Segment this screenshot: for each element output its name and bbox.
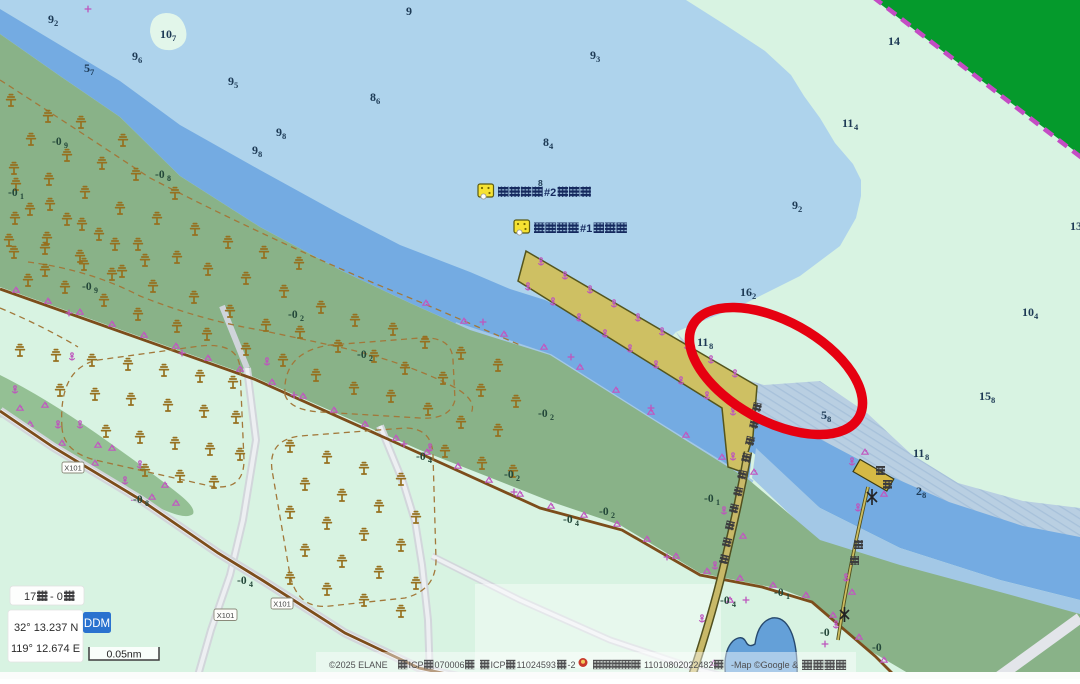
svg-text:4: 4 bbox=[428, 456, 432, 465]
svg-text:11010802022482: 11010802022482 bbox=[644, 660, 713, 670]
svg-text:17: 17 bbox=[24, 591, 36, 603]
svg-text:-0: -0 bbox=[820, 627, 830, 639]
svg-text:2: 2 bbox=[300, 314, 304, 323]
svg-text:-0: -0 bbox=[133, 494, 143, 506]
svg-text:2: 2 bbox=[752, 291, 756, 301]
svg-text:-0: -0 bbox=[563, 514, 573, 526]
svg-text:-0: -0 bbox=[720, 595, 730, 607]
svg-text:32° 13.237 N: 32° 13.237 N bbox=[14, 622, 78, 634]
svg-text:X101: X101 bbox=[64, 464, 82, 473]
svg-text:3: 3 bbox=[596, 54, 600, 64]
svg-text:-0: -0 bbox=[774, 587, 784, 599]
svg-text:2: 2 bbox=[54, 18, 58, 28]
svg-text:8: 8 bbox=[827, 414, 831, 424]
svg-text:2: 2 bbox=[369, 354, 373, 363]
svg-text:-0: -0 bbox=[704, 493, 714, 505]
svg-text:X101: X101 bbox=[217, 611, 235, 620]
svg-text:8: 8 bbox=[709, 341, 713, 351]
svg-text:11024593: 11024593 bbox=[517, 660, 556, 670]
svg-text:-0: -0 bbox=[872, 642, 882, 654]
svg-text:1: 1 bbox=[716, 498, 720, 507]
svg-text:13: 13 bbox=[1070, 219, 1080, 233]
svg-text:#1: #1 bbox=[580, 223, 592, 235]
svg-text:9: 9 bbox=[406, 4, 412, 18]
svg-text:-0: -0 bbox=[237, 575, 247, 587]
svg-text:-0: -0 bbox=[52, 136, 62, 148]
svg-text:#2: #2 bbox=[544, 187, 556, 199]
svg-text:6: 6 bbox=[138, 55, 142, 65]
svg-text:11: 11 bbox=[913, 446, 924, 460]
svg-text:15: 15 bbox=[979, 389, 991, 403]
svg-text:2: 2 bbox=[550, 413, 554, 422]
svg-text:14: 14 bbox=[888, 34, 900, 48]
svg-text:-0: -0 bbox=[8, 187, 18, 199]
svg-text:6: 6 bbox=[376, 96, 380, 106]
svg-text:2: 2 bbox=[611, 511, 615, 520]
svg-text:8: 8 bbox=[991, 395, 995, 405]
svg-text:DDM: DDM bbox=[84, 618, 110, 630]
svg-text:8: 8 bbox=[922, 490, 926, 500]
svg-text:- 0: - 0 bbox=[50, 591, 63, 603]
svg-text:8: 8 bbox=[258, 149, 262, 159]
svg-text:11: 11 bbox=[842, 116, 853, 130]
svg-text:-2: -2 bbox=[568, 660, 576, 670]
svg-text:4: 4 bbox=[249, 580, 253, 589]
svg-text:8: 8 bbox=[282, 131, 286, 141]
svg-text:2: 2 bbox=[798, 204, 802, 214]
svg-text:X101: X101 bbox=[273, 600, 291, 609]
svg-text:10: 10 bbox=[1022, 305, 1034, 319]
svg-text:070006: 070006 bbox=[435, 660, 465, 670]
svg-text:-0: -0 bbox=[504, 469, 514, 481]
svg-text:5: 5 bbox=[234, 80, 238, 90]
svg-text:0.05nm: 0.05nm bbox=[106, 649, 141, 661]
svg-text:-0: -0 bbox=[357, 349, 367, 361]
svg-text:©2025 ELANE: ©2025 ELANE bbox=[329, 660, 388, 670]
svg-text:4: 4 bbox=[575, 519, 579, 528]
svg-text:2: 2 bbox=[516, 474, 520, 483]
svg-text:9: 9 bbox=[64, 141, 68, 150]
svg-text:8: 8 bbox=[145, 499, 149, 508]
svg-text:-0: -0 bbox=[538, 408, 548, 420]
svg-text:10: 10 bbox=[160, 27, 172, 41]
svg-text:-0: -0 bbox=[82, 281, 92, 293]
svg-text:8: 8 bbox=[167, 174, 171, 183]
svg-text:16: 16 bbox=[740, 285, 752, 299]
svg-text:8: 8 bbox=[538, 178, 543, 188]
svg-text:8: 8 bbox=[925, 452, 929, 462]
svg-text:4: 4 bbox=[732, 600, 736, 609]
svg-text:ICP: ICP bbox=[491, 660, 506, 670]
svg-text:ICP: ICP bbox=[409, 660, 424, 670]
svg-text:-0: -0 bbox=[288, 309, 298, 321]
svg-text:9: 9 bbox=[94, 286, 98, 295]
svg-text:119° 12.674 E: 119° 12.674 E bbox=[11, 643, 80, 655]
svg-text:-0: -0 bbox=[599, 506, 609, 518]
svg-text:1: 1 bbox=[20, 192, 24, 201]
svg-text:11: 11 bbox=[697, 335, 708, 349]
svg-text:-Map ©Google &: -Map ©Google & bbox=[731, 660, 798, 670]
svg-text:1: 1 bbox=[786, 592, 790, 601]
svg-text:-0: -0 bbox=[155, 169, 165, 181]
svg-text:-0: -0 bbox=[416, 451, 426, 463]
